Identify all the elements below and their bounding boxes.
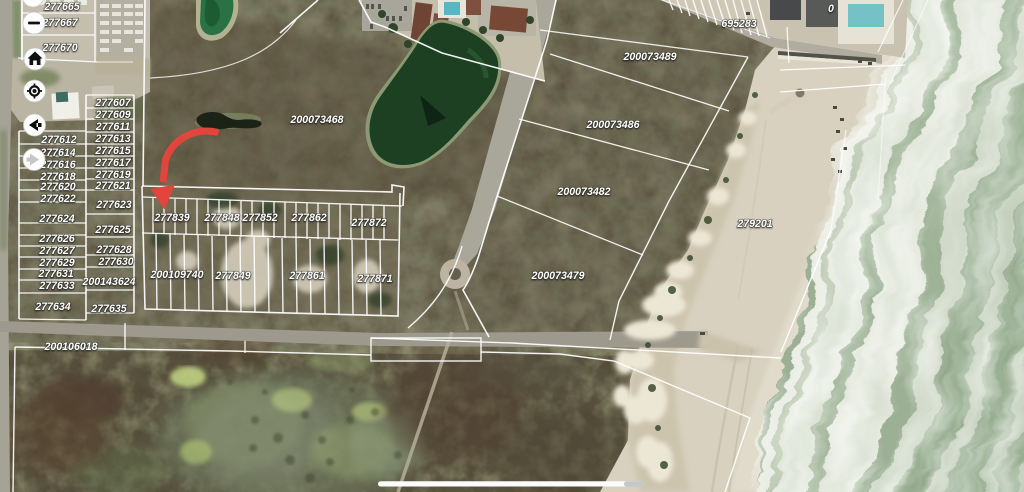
svg-text:200106018: 200106018 — [43, 341, 97, 353]
svg-text:277630: 277630 — [97, 256, 133, 268]
svg-text:277623: 277623 — [95, 199, 131, 211]
svg-text:277617: 277617 — [94, 157, 131, 169]
svg-text:200109740: 200109740 — [149, 269, 203, 281]
svg-text:277631: 277631 — [37, 268, 73, 280]
svg-text:277665: 277665 — [43, 1, 80, 13]
svg-text:277872: 277872 — [350, 217, 386, 229]
svg-text:200073479: 200073479 — [530, 270, 584, 282]
svg-text:277839: 277839 — [153, 212, 189, 224]
svg-text:277607: 277607 — [94, 97, 131, 109]
svg-text:277621: 277621 — [94, 180, 130, 192]
svg-text:200073482: 200073482 — [556, 186, 610, 198]
svg-text:277611: 277611 — [95, 121, 131, 133]
svg-text:277609: 277609 — [94, 109, 130, 121]
svg-text:277871: 277871 — [356, 273, 392, 285]
svg-text:277861: 277861 — [288, 270, 324, 282]
svg-text:200073468: 200073468 — [289, 114, 343, 126]
svg-text:277622: 277622 — [39, 193, 75, 205]
svg-text:277628: 277628 — [95, 244, 131, 256]
svg-text:277635: 277635 — [90, 303, 127, 315]
svg-text:277624: 277624 — [38, 213, 74, 225]
svg-text:200073489: 200073489 — [622, 51, 676, 63]
svg-text:277612: 277612 — [40, 134, 76, 146]
svg-text:277627: 277627 — [38, 245, 75, 257]
svg-text:0: 0 — [828, 3, 834, 15]
svg-text:277633: 277633 — [38, 280, 74, 292]
svg-text:277615: 277615 — [94, 145, 131, 157]
svg-text:277620: 277620 — [39, 181, 75, 193]
svg-text:277625: 277625 — [94, 224, 131, 236]
svg-text:277667: 277667 — [41, 17, 78, 29]
svg-text:279201: 279201 — [736, 218, 772, 230]
svg-text:277670: 277670 — [41, 42, 77, 54]
svg-text:277852: 277852 — [241, 212, 277, 224]
svg-text:277849: 277849 — [214, 270, 250, 282]
svg-text:695283: 695283 — [721, 18, 756, 30]
svg-text:277634: 277634 — [34, 301, 70, 313]
svg-text:277862: 277862 — [290, 212, 326, 224]
svg-text:277848: 277848 — [203, 212, 239, 224]
svg-text:277626: 277626 — [38, 233, 74, 245]
svg-text:277613: 277613 — [94, 133, 130, 145]
svg-text:200143624: 200143624 — [81, 276, 135, 288]
svg-text:200073486: 200073486 — [585, 119, 639, 131]
